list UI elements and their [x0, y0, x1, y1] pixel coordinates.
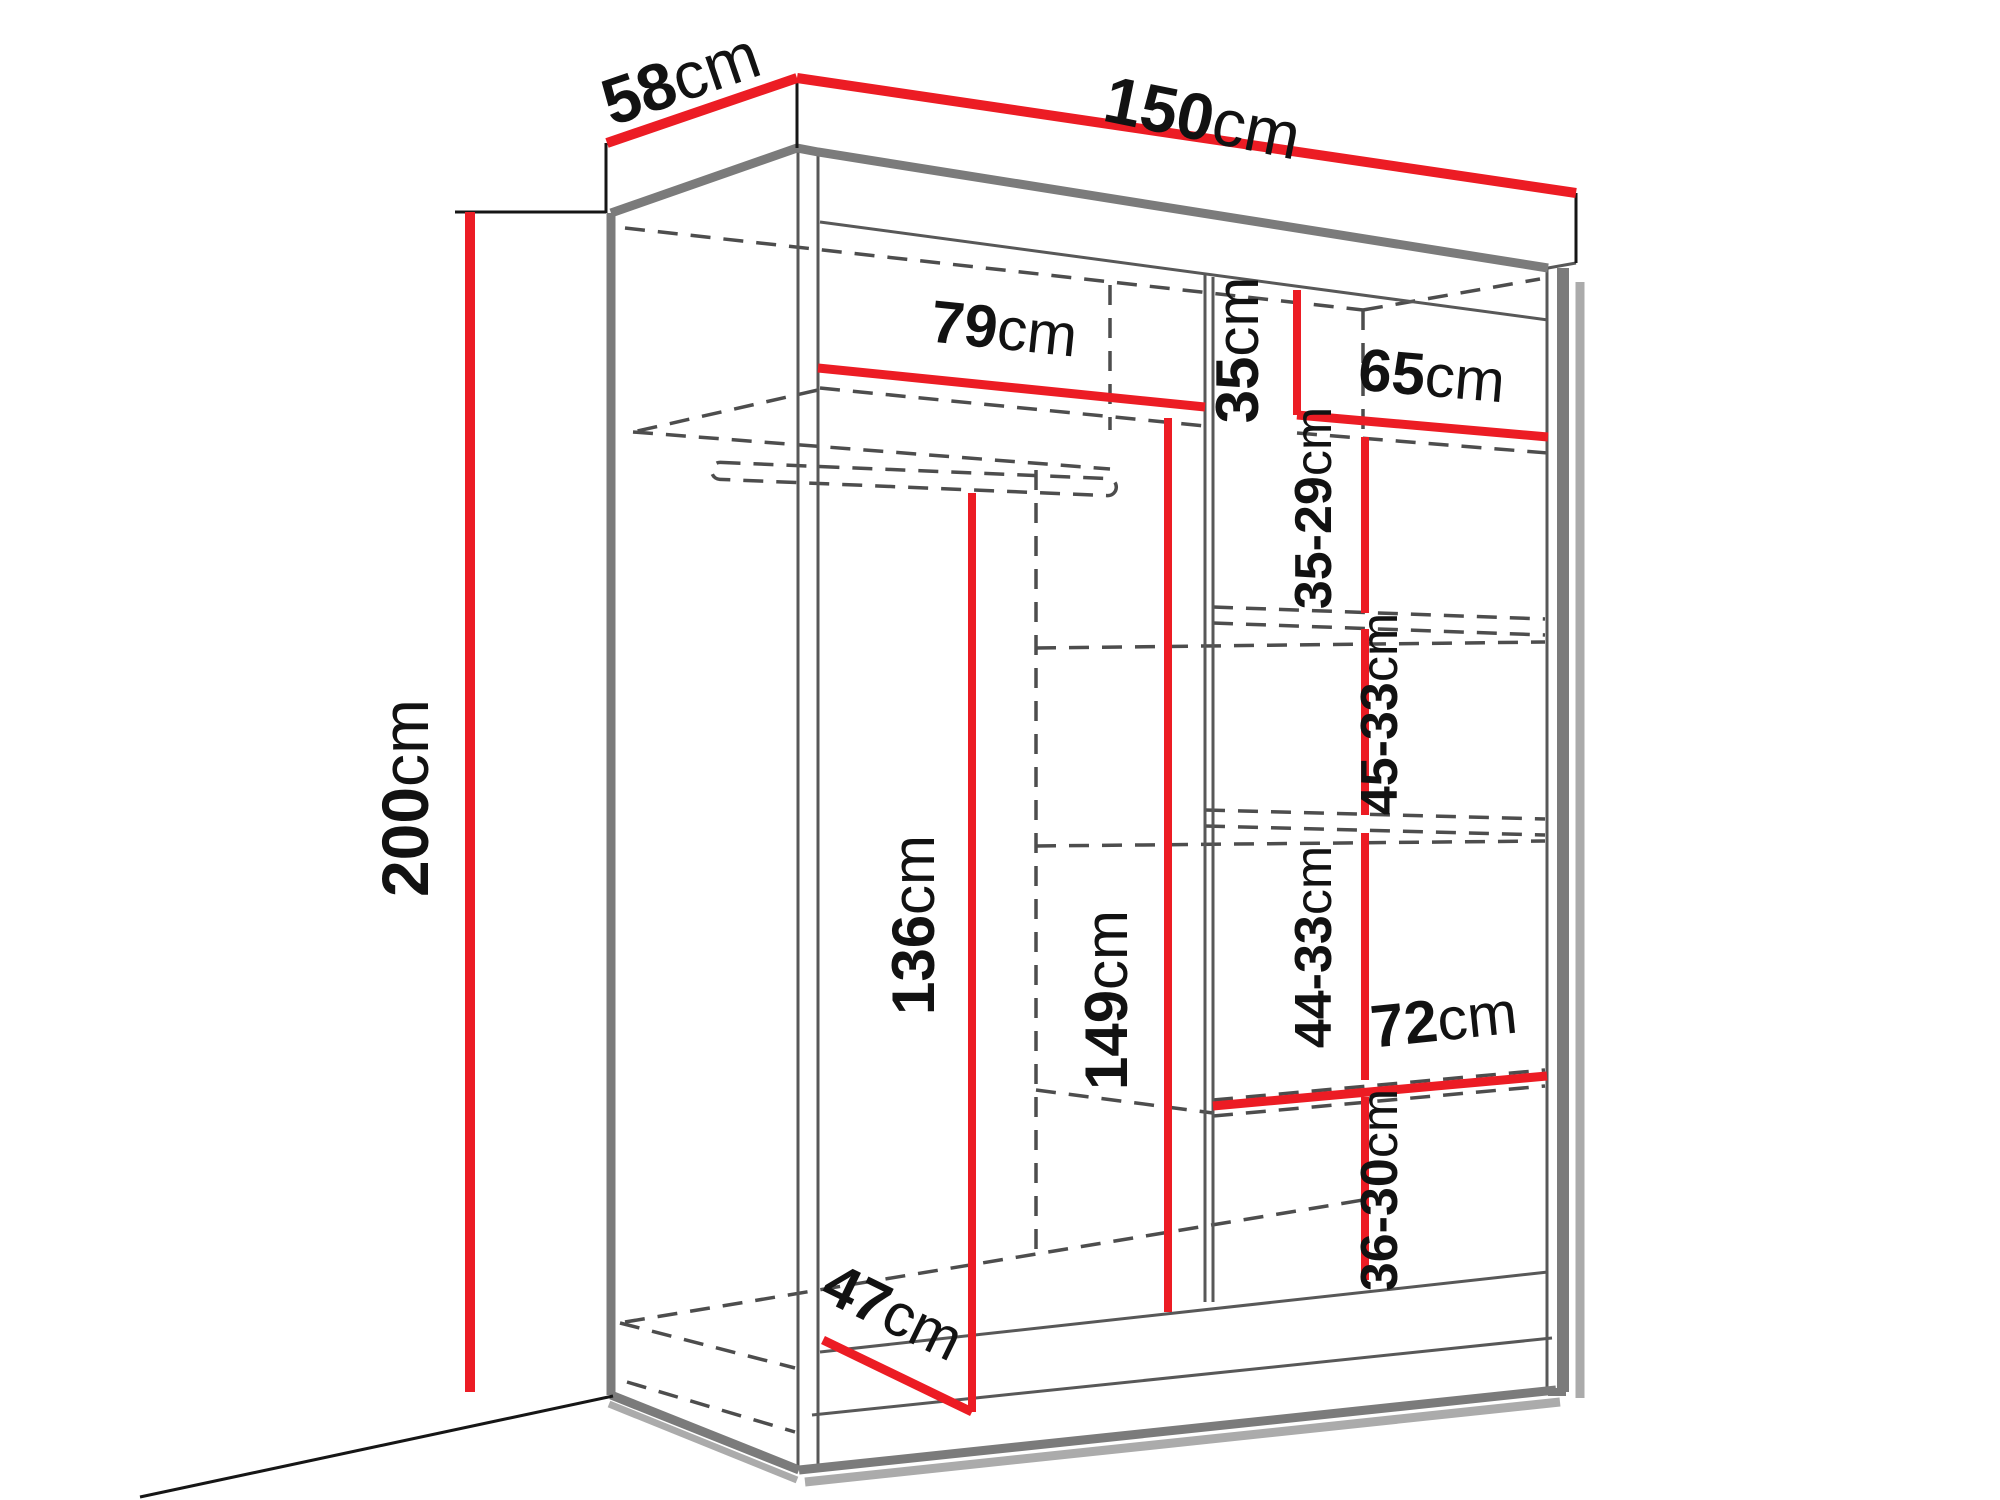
dim-right-gap1-label: 35-29cm [1285, 407, 1343, 609]
wardrobe-dimension-diagram: 58cm 150cm 200cm 79cm 35cm 65cm 35-29cm … [0, 0, 2000, 1500]
dim-bottom-shelf-label: 72cm [1367, 979, 1520, 1061]
hidden-edge-left-shelf-front [820, 388, 1205, 426]
hidden-edge-shelf3-back [1036, 1090, 1213, 1113]
header-right-join [1548, 263, 1576, 268]
dim-top-cubby-label: 35cm [1204, 277, 1271, 424]
dim-line-shelf-79 [818, 368, 1205, 407]
ceiling-front-edge [820, 222, 1548, 320]
dimension-lines [470, 78, 1576, 1412]
hidden-edge-left-shelf-back [633, 432, 1110, 469]
dim-width-label: 150cm [1098, 61, 1307, 173]
dim-bottom-depth-label: 47cm [812, 1249, 973, 1374]
hanging-rail-dashed [711, 462, 1116, 496]
front-bottom-edge [799, 1390, 1556, 1470]
shadow-bottom-left [609, 1404, 797, 1480]
shadow-bottom [805, 1402, 1560, 1482]
hidden-edge-left-shelf-side [633, 390, 818, 432]
dim-right-gap2-label: 45-33cm [1351, 613, 1409, 815]
hidden-edge-shelf1-back [1036, 642, 1545, 648]
dim-right-width-label: 65cm [1356, 336, 1508, 416]
side-panel-top-edge [611, 148, 797, 213]
dim-right-gap3-label: 44-33cm [1285, 846, 1343, 1048]
dimension-labels: 58cm 150cm 200cm 79cm 35cm 65cm 35-29cm … [368, 17, 1520, 1374]
hidden-edge-shelf2-b [1205, 826, 1545, 835]
dim-hanging-mid-label: 149cm [1073, 910, 1140, 1090]
dim-right-gap4-label: 36-30cm [1351, 1089, 1409, 1291]
hidden-edge-floor-side [620, 1323, 795, 1368]
dim-hanging-left-label: 136cm [880, 835, 947, 1015]
front-top-edge [797, 148, 1548, 268]
dim-height-label: 200cm [368, 699, 442, 897]
diagram-canvas: 58cm 150cm 200cm 79cm 35cm 65cm 35-29cm … [0, 0, 2000, 1500]
hidden-edge-right-wall-top [1363, 279, 1540, 310]
floor-line [140, 1396, 613, 1497]
hidden-edge-shelf2-back [1036, 841, 1545, 846]
dim-left-shelf-label: 79cm [928, 288, 1081, 370]
drop-shadows [609, 282, 1580, 1482]
